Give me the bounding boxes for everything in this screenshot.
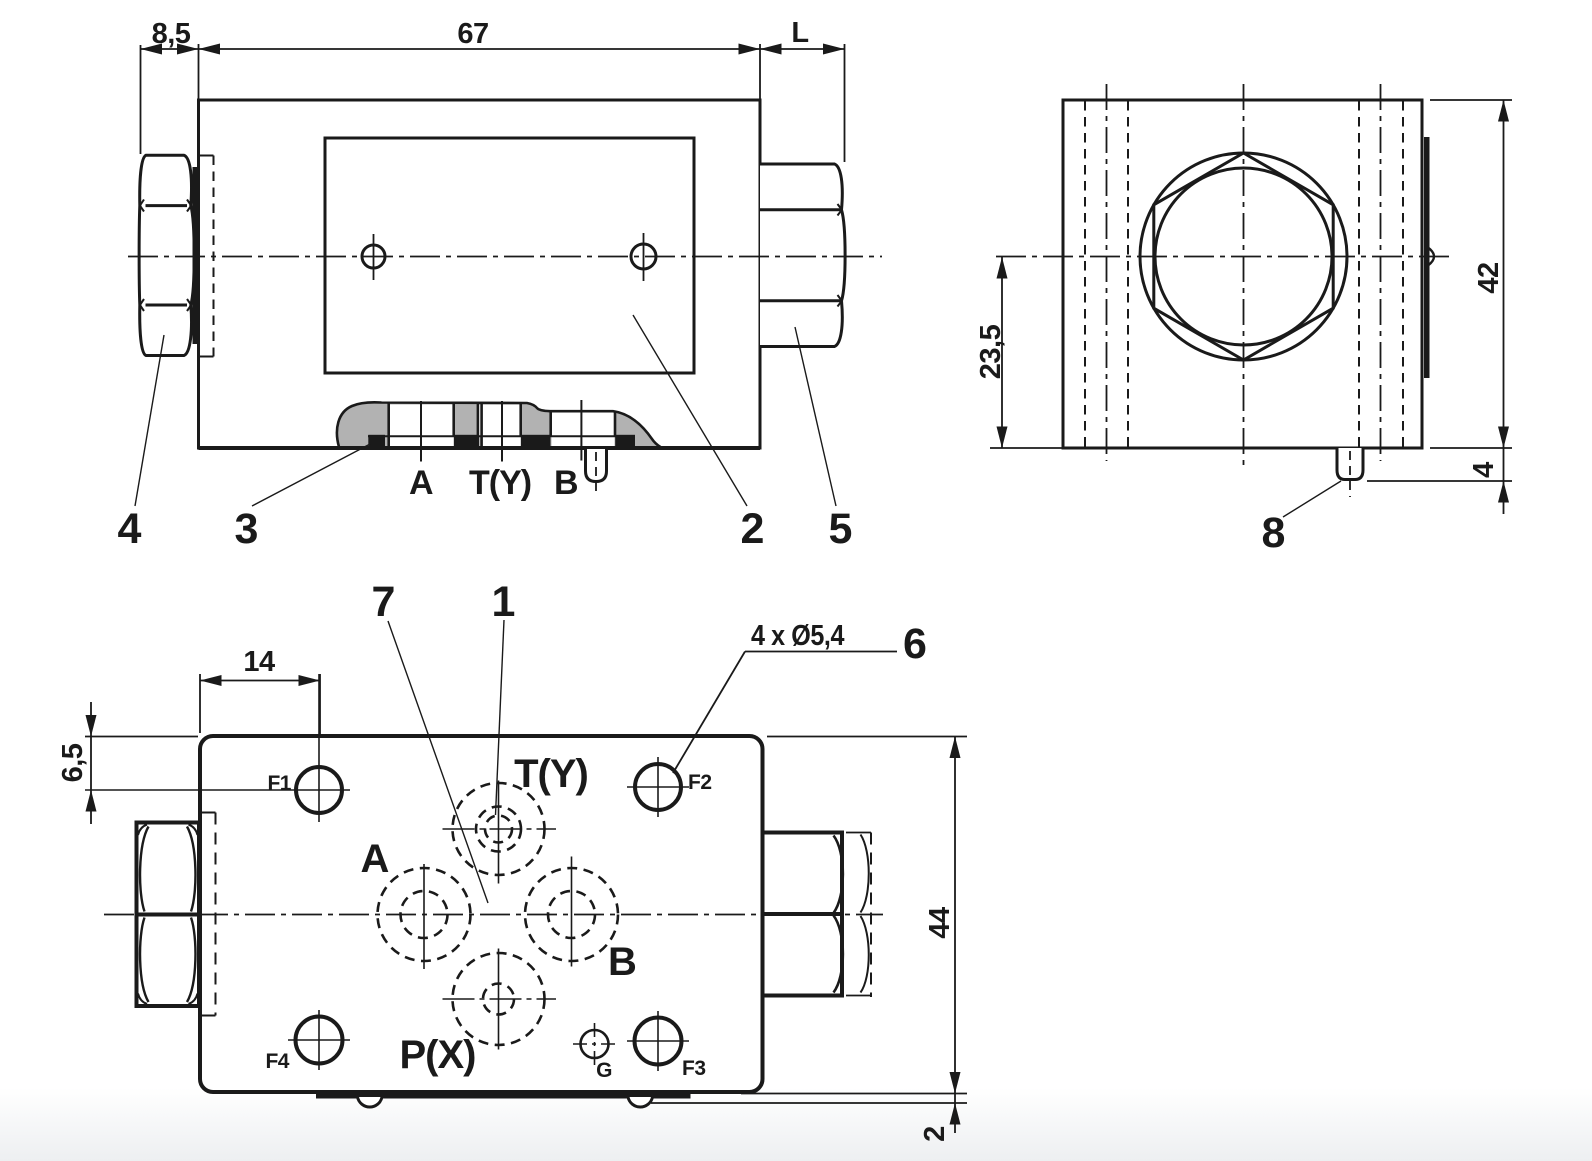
svg-text:3: 3 bbox=[235, 505, 258, 553]
svg-text:42: 42 bbox=[1473, 262, 1505, 293]
svg-text:T(Y): T(Y) bbox=[469, 464, 531, 502]
svg-text:4 x Ø5,4: 4 x Ø5,4 bbox=[751, 620, 844, 652]
svg-text:A: A bbox=[409, 464, 433, 502]
svg-text:8,5: 8,5 bbox=[152, 18, 191, 50]
svg-text:2: 2 bbox=[919, 1126, 951, 1142]
svg-text:4: 4 bbox=[1468, 462, 1500, 478]
svg-text:23,5: 23,5 bbox=[975, 324, 1007, 379]
svg-text:F1: F1 bbox=[267, 772, 291, 795]
svg-text:14: 14 bbox=[243, 646, 275, 678]
svg-text:1: 1 bbox=[492, 578, 515, 626]
svg-text:67: 67 bbox=[457, 18, 488, 50]
svg-text:44: 44 bbox=[924, 907, 956, 939]
svg-text:7: 7 bbox=[372, 578, 395, 626]
svg-text:6,5: 6,5 bbox=[57, 743, 89, 782]
svg-text:G: G bbox=[596, 1059, 612, 1082]
svg-text:T(Y): T(Y) bbox=[514, 752, 588, 796]
svg-text:F4: F4 bbox=[265, 1050, 289, 1073]
svg-text:4: 4 bbox=[118, 505, 142, 553]
svg-text:B: B bbox=[554, 464, 578, 502]
svg-text:B: B bbox=[608, 940, 636, 984]
svg-text:5: 5 bbox=[829, 505, 852, 553]
svg-text:2: 2 bbox=[741, 505, 764, 553]
svg-text:8: 8 bbox=[1262, 509, 1285, 557]
svg-text:F2: F2 bbox=[688, 771, 712, 794]
svg-text:6: 6 bbox=[903, 620, 926, 668]
svg-text:F3: F3 bbox=[682, 1057, 706, 1080]
svg-text:L: L bbox=[791, 17, 808, 49]
svg-text:P(X): P(X) bbox=[400, 1033, 476, 1077]
svg-text:A: A bbox=[361, 837, 389, 881]
